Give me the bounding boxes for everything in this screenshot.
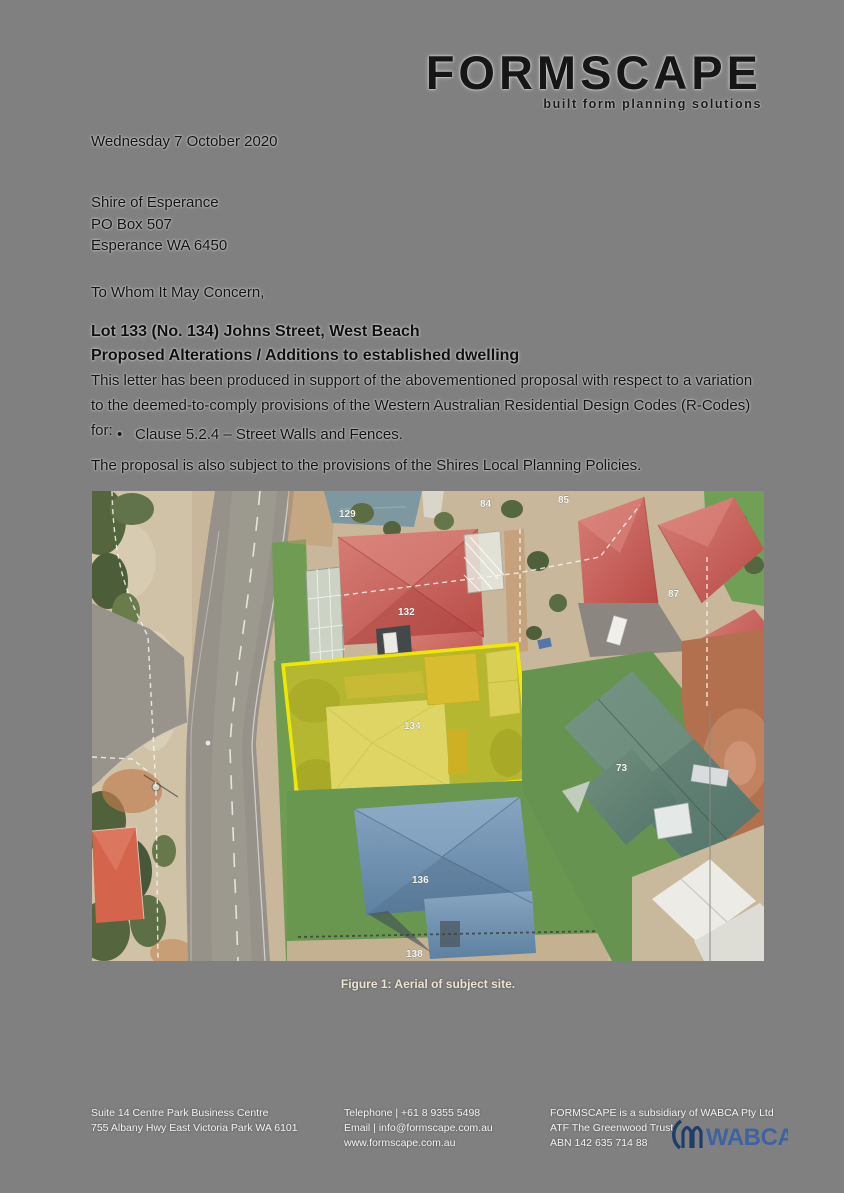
bullet-list-item: •Clause 5.2.4 – Street Walls and Fences. bbox=[91, 426, 767, 443]
aerial-figure: 129 84 85 87 132 134 136 73 138 bbox=[92, 491, 764, 961]
orange-roof-house bbox=[92, 827, 144, 923]
bullet-text: Clause 5.2.4 – Street Walls and Fences. bbox=[135, 426, 403, 443]
lot-label: 136 bbox=[412, 875, 429, 886]
recipient-line: Shire of Esperance bbox=[91, 192, 227, 214]
wabca-logo-text: WABCA bbox=[706, 1124, 788, 1151]
logo-wordmark: FORMSCAPE bbox=[426, 50, 762, 96]
glass-pergola bbox=[464, 531, 504, 593]
letter-document-page: FORMSCAPE built form planning solutions … bbox=[0, 0, 844, 1193]
subject-line-1: Lot 133 (No. 134) Johns Street, West Bea… bbox=[91, 320, 519, 344]
recipient-line: PO Box 507 bbox=[91, 214, 227, 236]
bullet-marker: • bbox=[117, 426, 135, 443]
footer-contact: Telephone | +61 8 9355 5498 Email | info… bbox=[344, 1106, 493, 1151]
lot-label: 134 bbox=[404, 721, 421, 732]
footer-address-line-2: 755 Albany Hwy East Victoria Park WA 610… bbox=[91, 1121, 298, 1136]
formscape-logo: FORMSCAPE built form planning solutions bbox=[426, 50, 762, 111]
lot-label: 87 bbox=[668, 589, 680, 600]
footer-email: Email | info@formscape.com.au bbox=[344, 1121, 493, 1136]
footer-address: Suite 14 Centre Park Business Centre 755… bbox=[91, 1106, 298, 1136]
greenhouse bbox=[306, 567, 345, 673]
aerial-photo: 129 84 85 87 132 134 136 73 138 bbox=[92, 491, 764, 961]
logo-tagline: built form planning solutions bbox=[426, 97, 762, 111]
footer-telephone: Telephone | +61 8 9355 5498 bbox=[344, 1106, 493, 1121]
closing-paragraph: The proposal is also subject to the prov… bbox=[91, 457, 767, 474]
wabca-logo: WABCA bbox=[668, 1114, 788, 1154]
lot-label: 138 bbox=[406, 949, 423, 960]
lot-label: 84 bbox=[480, 499, 492, 510]
lot-label: 132 bbox=[398, 607, 415, 618]
footer-website: www.formscape.com.au bbox=[344, 1136, 493, 1151]
lot-label: 73 bbox=[616, 763, 628, 774]
recipient-address-block: Shire of Esperance PO Box 507 Esperance … bbox=[91, 192, 227, 257]
subject-line-2: Proposed Alterations / Additions to esta… bbox=[91, 344, 519, 368]
subject-heading: Lot 133 (No. 134) Johns Street, West Bea… bbox=[91, 320, 519, 367]
wabca-logo-icon bbox=[674, 1121, 701, 1148]
lawn bbox=[272, 539, 310, 675]
footer-address-line-1: Suite 14 Centre Park Business Centre bbox=[91, 1106, 298, 1121]
recipient-line: Esperance WA 6450 bbox=[91, 235, 227, 257]
white-car bbox=[383, 632, 398, 653]
salutation: To Whom It May Concern, bbox=[91, 284, 264, 301]
figure-caption: Figure 1: Aerial of subject site. bbox=[92, 977, 764, 991]
letter-date: Wednesday 7 October 2020 bbox=[91, 133, 278, 150]
lot-label: 85 bbox=[558, 495, 570, 506]
lot-label: 129 bbox=[339, 509, 356, 520]
